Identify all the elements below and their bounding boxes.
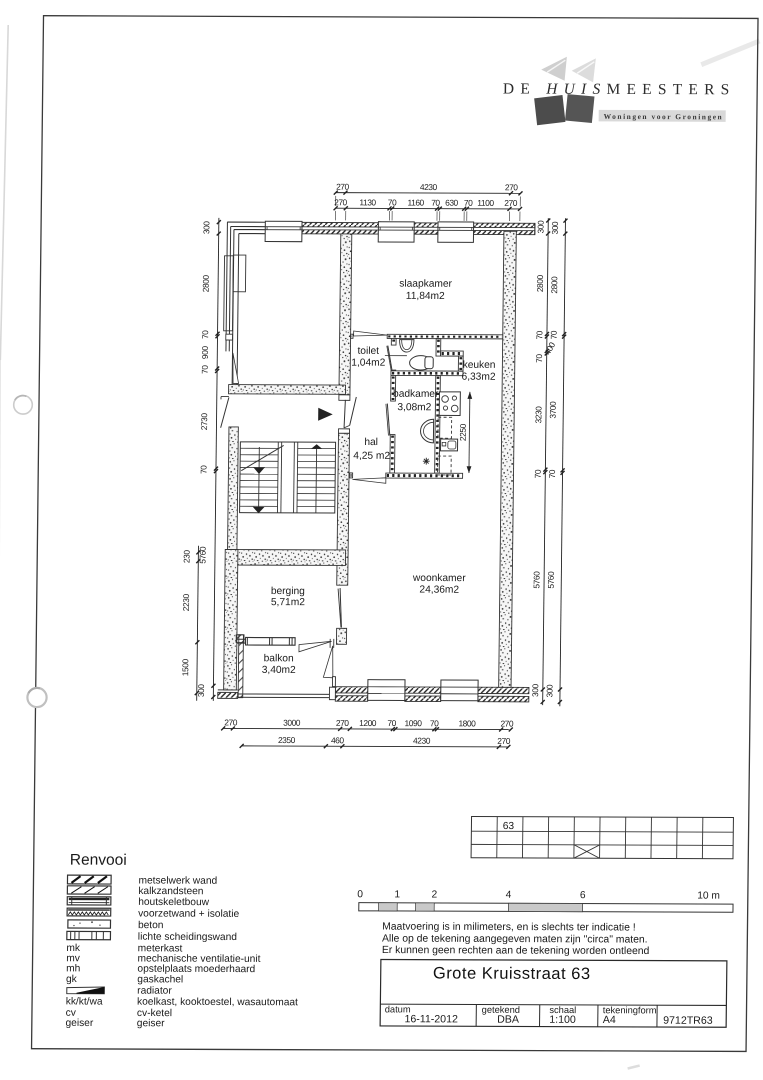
svg-text:radiator: radiator (137, 986, 172, 997)
svg-text:270: 270 (334, 197, 348, 207)
svg-text:70: 70 (547, 469, 557, 478)
svg-text:460: 460 (331, 735, 345, 745)
svg-text:5,71m2: 5,71m2 (271, 597, 305, 608)
svg-text:1130: 1130 (359, 197, 376, 207)
svg-text:70: 70 (464, 198, 473, 208)
svg-text:3230: 3230 (533, 406, 543, 424)
svg-text:hal: hal (364, 437, 378, 448)
svg-text:270: 270 (497, 736, 511, 746)
svg-text:koelkast, kooktoestel, wasauto: koelkast, kooktoestel, wasautomaat (137, 997, 298, 1009)
svg-text:Renvooi: Renvooi (70, 852, 127, 869)
svg-text:24,36m2: 24,36m2 (419, 585, 459, 596)
svg-text:230: 230 (181, 550, 191, 563)
svg-text:kk/kt/wa: kk/kt/wa (66, 996, 103, 1007)
svg-text:400: 400 (542, 340, 557, 357)
svg-text:5760: 5760 (531, 571, 541, 589)
svg-text:Woningen voor Groningen: Woningen voor Groningen (604, 112, 724, 121)
svg-text:1160: 1160 (407, 197, 424, 207)
svg-text:1100: 1100 (477, 198, 494, 208)
svg-text:270: 270 (500, 718, 514, 728)
svg-text:270: 270 (224, 717, 238, 727)
svg-text:300: 300 (530, 683, 540, 696)
svg-text:10 m: 10 m (697, 891, 720, 902)
svg-text:3700: 3700 (548, 401, 558, 419)
svg-text:geiser: geiser (137, 1018, 165, 1029)
svg-text:900: 900 (200, 346, 210, 359)
svg-text:6,33m2: 6,33m2 (461, 372, 495, 383)
svg-text:70: 70 (387, 718, 396, 728)
svg-text:70: 70 (200, 365, 210, 374)
svg-text:4230: 4230 (413, 736, 431, 746)
svg-text:16-11-2012: 16-11-2012 (404, 1013, 458, 1025)
svg-text:3,08m2: 3,08m2 (397, 402, 431, 413)
svg-text:2800: 2800 (549, 276, 559, 294)
svg-text:2730: 2730 (199, 413, 209, 431)
svg-text:beton: beton (138, 920, 164, 931)
svg-text:DE HUISMEESTERS: DE HUISMEESTERS (503, 80, 736, 98)
svg-text:kalkzandsteen: kalkzandsteen (138, 886, 203, 897)
svg-text:63: 63 (503, 821, 515, 832)
svg-text:1,04m2: 1,04m2 (351, 358, 385, 369)
svg-text:2230: 2230 (181, 594, 191, 612)
svg-text:gk: gk (66, 974, 78, 985)
svg-text:70: 70 (534, 330, 544, 339)
svg-text:70: 70 (534, 354, 544, 363)
svg-text:6: 6 (580, 890, 586, 901)
svg-text:300: 300 (536, 220, 546, 233)
svg-text:Alle op de tekening aangegeven: Alle op de tekening aangegeven maten zij… (382, 934, 648, 946)
svg-text:3000: 3000 (283, 718, 301, 728)
svg-text:DBA: DBA (497, 1014, 520, 1026)
svg-text:270: 270 (504, 198, 518, 208)
svg-text:70: 70 (200, 330, 210, 339)
svg-text:4,25 m2: 4,25 m2 (353, 451, 390, 462)
svg-text:1: 1 (394, 889, 400, 900)
svg-text:70: 70 (430, 718, 439, 728)
svg-text:toilet: toilet (357, 346, 379, 357)
svg-text:4230: 4230 (420, 182, 438, 192)
svg-text:630: 630 (445, 198, 459, 208)
svg-text:geiser: geiser (65, 1018, 93, 1029)
svg-text:1800: 1800 (458, 718, 476, 728)
svg-text:Grote Kruisstraat 63: Grote Kruisstraat 63 (433, 964, 591, 983)
svg-text:badkamer: badkamer (393, 389, 439, 400)
svg-text:300: 300 (196, 684, 206, 697)
svg-text:woonkamer: woonkamer (412, 573, 466, 584)
svg-text:270: 270 (505, 182, 519, 192)
svg-text:1090: 1090 (405, 718, 423, 728)
svg-text:2800: 2800 (201, 275, 211, 293)
svg-text:11,84m2: 11,84m2 (406, 291, 445, 302)
svg-text:270: 270 (336, 718, 350, 728)
svg-text:2250: 2250 (458, 423, 468, 441)
svg-text:Er kunnen geen rechten aan de: Er kunnen geen rechten aan de tekening w… (382, 945, 650, 957)
svg-text:70: 70 (431, 198, 440, 208)
svg-text:5760: 5760 (546, 571, 556, 589)
svg-text:9712TR63: 9712TR63 (663, 1015, 713, 1027)
svg-text:270: 270 (336, 182, 350, 192)
svg-text:slaapkamer: slaapkamer (399, 279, 452, 290)
svg-text:A4: A4 (603, 1014, 616, 1026)
svg-text:2800: 2800 (535, 274, 545, 292)
svg-text:1:100: 1:100 (549, 1014, 576, 1026)
svg-text:3,40m2: 3,40m2 (262, 665, 296, 676)
svg-text:1200: 1200 (359, 718, 377, 728)
svg-text:0: 0 (357, 889, 363, 900)
svg-text:300: 300 (550, 221, 560, 234)
svg-text:lichte scheidingswand: lichte scheidingswand (138, 932, 238, 943)
svg-text:70: 70 (199, 465, 209, 474)
svg-text:houtskeletbouw: houtskeletbouw (138, 897, 210, 908)
svg-text:gaskachel: gaskachel (137, 974, 183, 985)
svg-text:voorzetwand + isolatie: voorzetwand + isolatie (138, 908, 240, 919)
svg-text:70: 70 (388, 197, 397, 207)
svg-text:300: 300 (544, 684, 554, 697)
svg-text:4: 4 (506, 890, 512, 901)
svg-text:keuken: keuken (463, 360, 496, 371)
svg-text:mh: mh (66, 963, 80, 974)
svg-text:2350: 2350 (278, 735, 296, 745)
svg-text:2: 2 (431, 890, 437, 901)
svg-text:70: 70 (533, 469, 543, 478)
svg-text:Maatvoering is in milimeters,: Maatvoering is in milimeters, en is slec… (382, 922, 636, 934)
svg-text:1500: 1500 (180, 659, 190, 677)
svg-text:70: 70 (549, 330, 559, 339)
svg-text:balkon: balkon (264, 653, 294, 664)
svg-text:berging: berging (271, 586, 305, 597)
svg-text:300: 300 (201, 221, 211, 234)
